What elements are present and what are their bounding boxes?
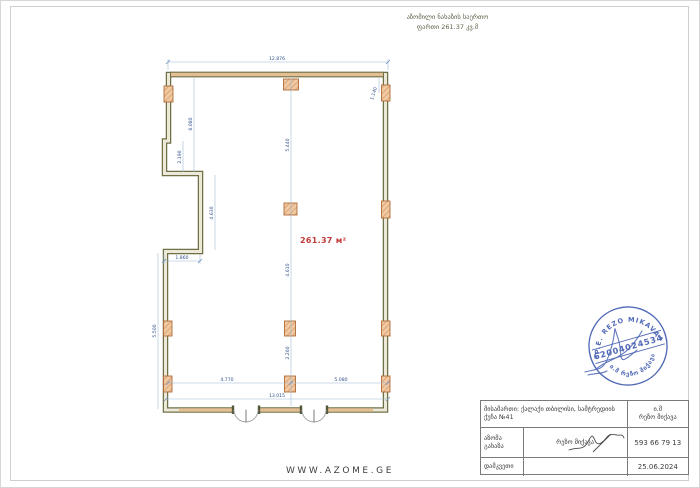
- dim-bottom-left: 4.770: [220, 377, 233, 383]
- dim-center-upper: 5.440: [285, 138, 291, 151]
- dimension-lines: [158, 59, 390, 409]
- watermark: WWW.AZOME.GE: [255, 466, 425, 476]
- column: [164, 376, 173, 392]
- column: [382, 85, 391, 101]
- dim-left-step: 2.190: [177, 150, 183, 163]
- phone-number: 593 66 79 13: [631, 439, 685, 447]
- document-page: აზომილი ნახაზის საერთო ფართი 261.37 კვ.მ: [0, 0, 700, 488]
- address-text: მისამართი: ქალაქი თბილისი, სამტრედიის ქუ…: [484, 406, 624, 423]
- dimension-ticks: [162, 60, 390, 401]
- dim-center-middle: 4.610: [285, 263, 291, 276]
- column: [382, 201, 391, 218]
- stamp-star-right-icon: ✱: [659, 335, 665, 342]
- surveyor-name-cell: რეზო მიქავა: [524, 428, 628, 458]
- area-label: 261.37 м²: [300, 236, 347, 245]
- dim-left-lower: 5.500: [152, 324, 158, 337]
- company-line2: რეზო მიქავა: [631, 414, 685, 423]
- dim-bottom-right: 5.080: [334, 377, 347, 383]
- column: [164, 321, 173, 336]
- surveyor-signature: [567, 430, 625, 456]
- company-cell: ი.მ რეზო მიქავა: [628, 401, 688, 428]
- dimension-labels: 12.876 1.140 6.080 2.190 4.630 1.860 5.5…: [152, 56, 379, 399]
- dim-notch-width: 1.860: [175, 255, 188, 261]
- dim-bottom-total: 13.015: [269, 393, 285, 399]
- column: [164, 86, 173, 102]
- date-value: 25.06.2024: [631, 463, 685, 471]
- client-label-cell: დამკვეთი: [481, 458, 524, 476]
- stamp: P.E. REZO MIKAVA ი.მ რეზო მიქავა 6200402…: [580, 298, 676, 394]
- dim-notch-vertical: 4.630: [209, 206, 215, 219]
- column: [285, 321, 296, 336]
- dim-top-right: 1.140: [369, 86, 379, 100]
- address-cell: მისამართი: ქალაქი თბილისი, სამტრედიის ქუ…: [481, 401, 628, 428]
- column: [382, 376, 391, 392]
- columns: [164, 79, 391, 392]
- doors: [232, 405, 328, 423]
- dim-center-lower: 2.260: [285, 346, 291, 359]
- dim-left-upper: 6.080: [188, 117, 194, 130]
- column: [284, 203, 297, 215]
- client-name-cell: [524, 458, 628, 476]
- phone-cell: 593 66 79 13: [628, 428, 688, 458]
- column: [382, 321, 391, 336]
- wall-outline: [165, 75, 386, 411]
- surveyor-label: აზომა გახაზა: [484, 435, 520, 451]
- surveyor-label-cell: აზომა გახაზა: [481, 428, 524, 458]
- company-line1: ი.მ: [631, 406, 685, 415]
- title-block: მისამართი: ქალაქი თბილისი, სამტრედიის ქუ…: [480, 400, 689, 475]
- client-label: დამკვეთი: [484, 463, 520, 471]
- date-cell: 25.06.2024: [628, 458, 688, 476]
- dim-top-total: 12.876: [269, 56, 285, 62]
